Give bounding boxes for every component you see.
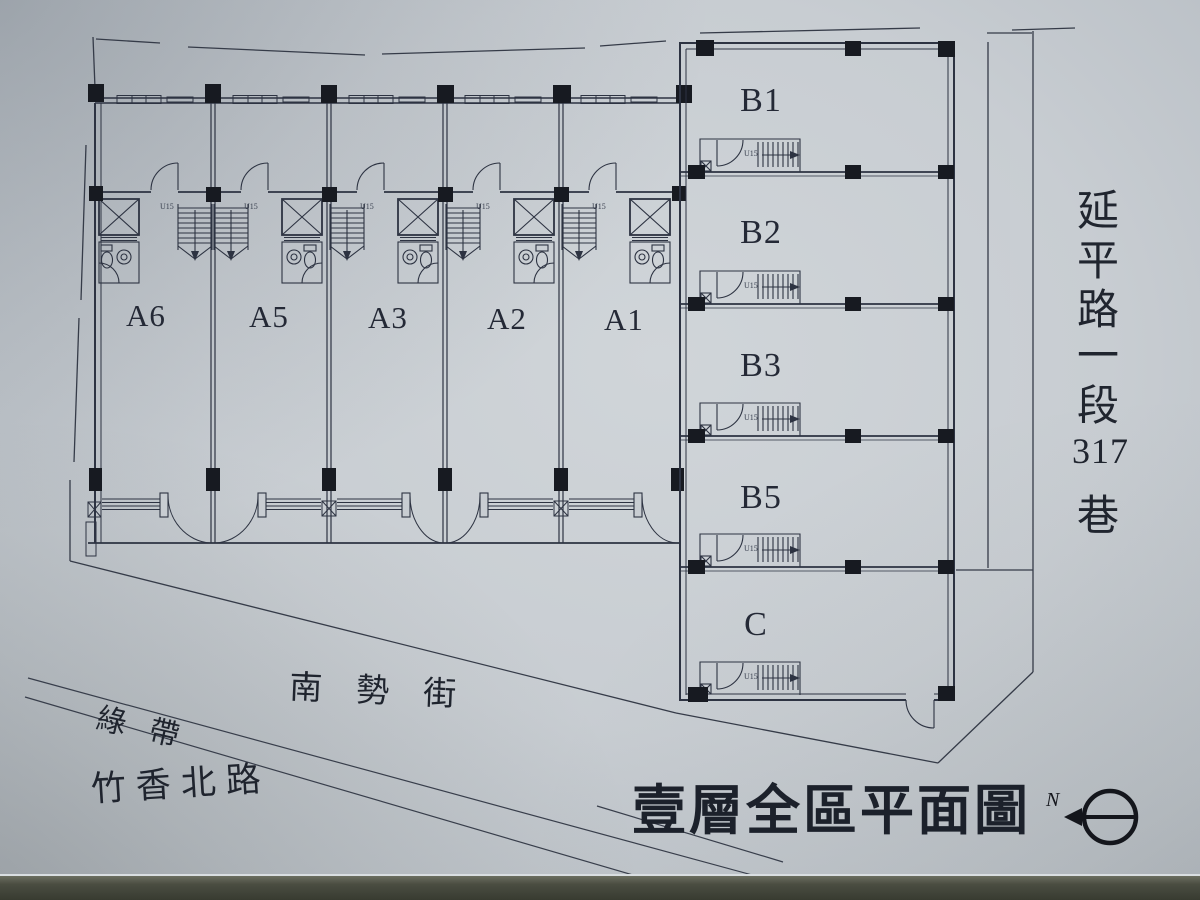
stair-label: U15: [744, 545, 758, 553]
stair-label: U15: [744, 282, 758, 290]
unit-a1-core: [562, 163, 670, 283]
unit-a3-core: [330, 163, 438, 283]
unit-label-b5: B5: [731, 481, 791, 515]
stair-label: U15: [744, 150, 758, 158]
stair-label: U15: [744, 673, 758, 681]
north-arrow-icon: [1064, 791, 1136, 843]
unit-label-a2: A2: [477, 303, 537, 334]
drawing-title: 壹層全區平面圖: [632, 784, 1052, 838]
unit-label-a6: A6: [116, 300, 176, 331]
unit-label-a1: A1: [594, 304, 654, 335]
street-east-char: 段: [1072, 372, 1124, 433]
unit-label-b1: B1: [731, 84, 791, 118]
photo-edge: [0, 874, 1200, 900]
unit-a2-core: [446, 163, 554, 283]
street-east-char: 巷: [1072, 482, 1124, 543]
stair-label: U15: [744, 414, 758, 422]
stair-label: U15: [244, 203, 258, 211]
unit-label-a3: A3: [358, 302, 418, 333]
unit-label-c: C: [726, 608, 786, 642]
street-east-number: 317: [1072, 430, 1124, 472]
stair-label: U15: [592, 203, 606, 211]
columns-a: [88, 84, 692, 491]
stair-label: U15: [360, 203, 374, 211]
floor-plan-photo: A6 A5 A3 A2 A1 B1 B2 B3 B5 C U15 U15 U15…: [0, 0, 1200, 900]
site-boundary: [70, 28, 1075, 763]
unit-label-a5: A5: [239, 301, 299, 332]
north-label: N: [1046, 790, 1059, 810]
unit-label-b3: B3: [731, 349, 791, 383]
stair-label: U15: [160, 203, 174, 211]
unit-a5-core: [214, 163, 322, 283]
stair-label: U15: [476, 203, 490, 211]
unit-label-b2: B2: [731, 216, 791, 250]
block-b: [680, 40, 955, 728]
unit-a6-core: [99, 163, 212, 283]
